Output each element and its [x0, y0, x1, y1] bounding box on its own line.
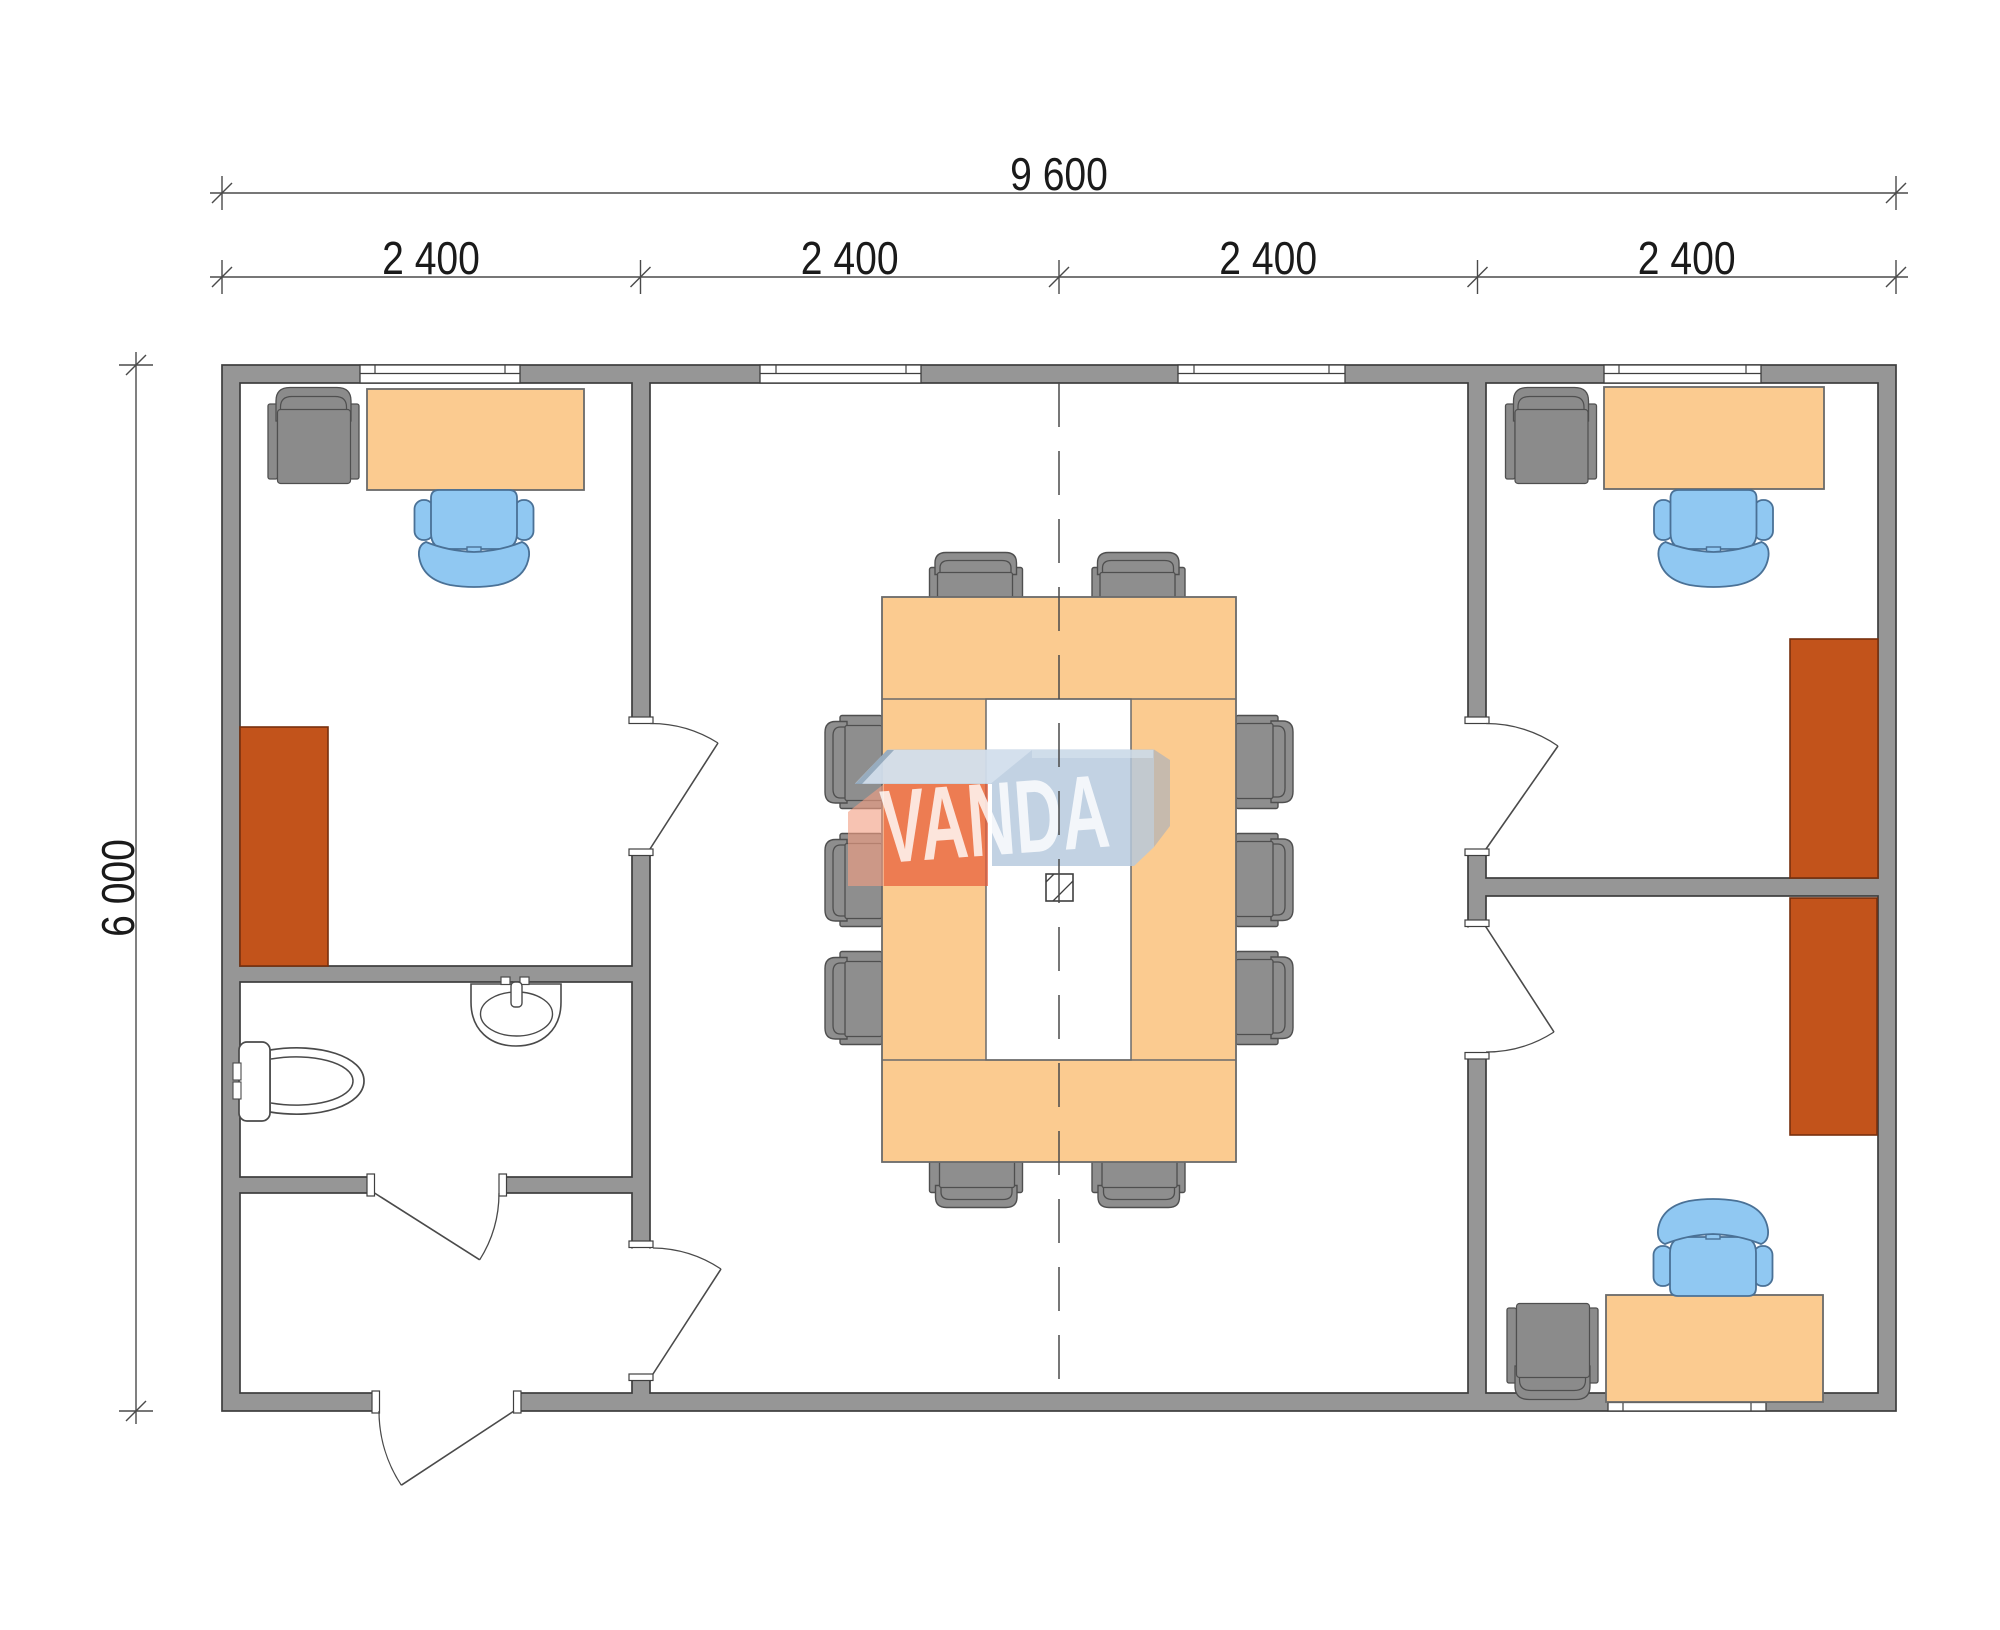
svg-text:2 400: 2 400 [382, 233, 480, 285]
svg-text:6 000: 6 000 [93, 839, 145, 937]
svg-text:2 400: 2 400 [1219, 233, 1317, 285]
svg-text:2 400: 2 400 [1638, 233, 1736, 285]
svg-text:9 600: 9 600 [1010, 149, 1108, 201]
svg-text:VANDA: VANDA [877, 753, 1113, 885]
svg-text:2 400: 2 400 [801, 233, 899, 285]
